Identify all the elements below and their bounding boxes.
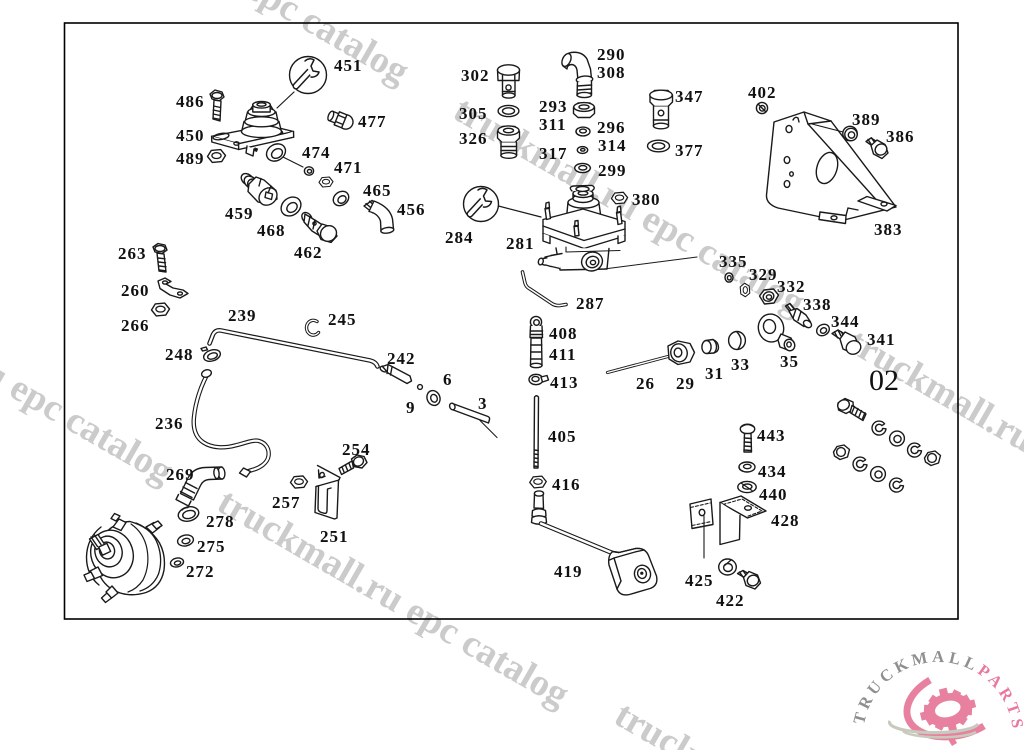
- svg-text:31: 31: [705, 364, 724, 383]
- svg-text:251: 251: [320, 527, 349, 546]
- svg-text:408: 408: [549, 324, 578, 343]
- svg-text:380: 380: [632, 190, 661, 209]
- svg-text:411: 411: [549, 345, 577, 364]
- svg-text:456: 456: [397, 200, 426, 219]
- svg-text:450: 450: [176, 126, 205, 145]
- svg-text:489: 489: [176, 149, 205, 168]
- svg-text:471: 471: [334, 158, 363, 177]
- svg-text:465: 465: [363, 181, 392, 200]
- svg-text:239: 239: [228, 306, 257, 325]
- svg-text:9: 9: [406, 398, 416, 417]
- svg-text:284: 284: [445, 228, 474, 247]
- svg-text:389: 389: [852, 110, 881, 129]
- svg-text:245: 245: [328, 310, 357, 329]
- svg-text:269: 269: [166, 465, 195, 484]
- svg-text:236: 236: [155, 414, 184, 433]
- svg-text:296: 296: [597, 118, 626, 137]
- svg-text:419: 419: [554, 562, 583, 581]
- svg-text:440: 440: [759, 485, 788, 504]
- svg-text:272: 272: [186, 562, 215, 581]
- svg-text:474: 474: [302, 143, 331, 162]
- svg-text:462: 462: [294, 243, 323, 262]
- svg-text:308: 308: [597, 63, 626, 82]
- svg-text:257: 257: [272, 493, 301, 512]
- svg-text:6: 6: [443, 370, 453, 389]
- svg-text:278: 278: [206, 512, 235, 531]
- svg-text:305: 305: [459, 104, 488, 123]
- svg-text:347: 347: [675, 87, 704, 106]
- svg-text:344: 344: [831, 312, 860, 331]
- svg-text:26: 26: [636, 374, 655, 393]
- svg-text:263: 263: [118, 244, 147, 263]
- svg-text:434: 434: [758, 462, 787, 481]
- svg-text:332: 332: [777, 277, 806, 296]
- svg-text:416: 416: [552, 475, 581, 494]
- svg-text:377: 377: [675, 141, 704, 160]
- svg-text:338: 338: [803, 295, 832, 314]
- svg-text:451: 451: [334, 56, 363, 75]
- svg-text:266: 266: [121, 316, 150, 335]
- svg-text:29: 29: [676, 374, 695, 393]
- svg-text:293: 293: [539, 97, 568, 116]
- svg-text:405: 405: [548, 427, 577, 446]
- svg-text:383: 383: [874, 220, 903, 239]
- svg-text:275: 275: [197, 537, 226, 556]
- svg-text:468: 468: [257, 221, 286, 240]
- svg-text:314: 314: [598, 136, 627, 155]
- svg-text:386: 386: [886, 127, 915, 146]
- svg-text:329: 329: [749, 265, 778, 284]
- svg-text:422: 422: [716, 591, 745, 610]
- svg-text:428: 428: [771, 511, 800, 530]
- svg-text:260: 260: [121, 281, 150, 300]
- svg-text:254: 254: [342, 440, 371, 459]
- svg-text:402: 402: [748, 83, 777, 102]
- svg-text:443: 443: [757, 426, 786, 445]
- svg-text:281: 281: [506, 234, 535, 253]
- svg-text:242: 242: [387, 349, 416, 368]
- svg-text:413: 413: [550, 373, 579, 392]
- svg-text:486: 486: [176, 92, 205, 111]
- svg-text:33: 33: [731, 355, 750, 374]
- svg-text:287: 287: [576, 294, 605, 313]
- svg-text:35: 35: [780, 352, 799, 371]
- svg-text:299: 299: [598, 161, 627, 180]
- svg-text:317: 317: [539, 144, 568, 163]
- svg-text:335: 335: [719, 252, 748, 271]
- svg-text:425: 425: [685, 571, 714, 590]
- svg-text:477: 477: [358, 112, 387, 131]
- svg-text:02: 02: [869, 364, 899, 397]
- svg-text:326: 326: [459, 129, 488, 148]
- svg-text:248: 248: [165, 345, 194, 364]
- svg-text:290: 290: [597, 45, 626, 64]
- svg-text:3: 3: [478, 394, 488, 413]
- svg-text:311: 311: [539, 115, 567, 134]
- svg-text:302: 302: [461, 66, 490, 85]
- svg-text:341: 341: [867, 330, 896, 349]
- svg-text:459: 459: [225, 204, 254, 223]
